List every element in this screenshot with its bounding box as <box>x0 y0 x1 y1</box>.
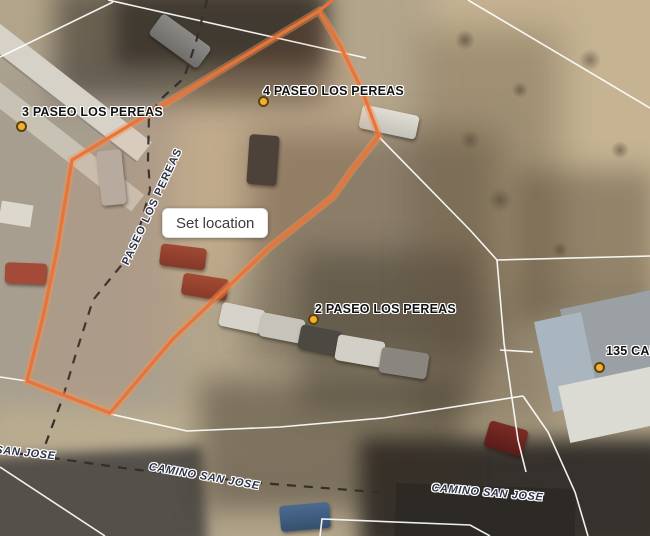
address-label: 3 PASEO LOS PEREAS <box>22 105 163 119</box>
address-marker[interactable] <box>258 96 269 107</box>
address-marker[interactable] <box>594 362 605 373</box>
parcel-boundary-line <box>497 260 526 472</box>
address-marker[interactable] <box>308 314 319 325</box>
parcel-boundary-line <box>523 396 588 536</box>
parcel-boundary-line <box>0 377 27 381</box>
address-label: 4 PASEO LOS PEREAS <box>263 84 404 98</box>
parcel-lines-layer <box>0 0 650 536</box>
parcel-boundary-line <box>0 467 105 536</box>
address-marker[interactable] <box>16 121 27 132</box>
set-location-menu-item[interactable]: Set location <box>162 208 268 238</box>
parcel-boundary-line <box>379 137 650 260</box>
address-label: 135 CAM <box>606 344 650 358</box>
parcel-boundary-line <box>468 0 650 108</box>
map-canvas[interactable]: 3 PASEO LOS PEREAS 4 PASEO LOS PEREAS 2 … <box>0 0 650 536</box>
address-label: 2 PASEO LOS PEREAS <box>315 302 456 316</box>
parcel-boundary-line <box>0 2 113 57</box>
selected-parcel-boundary-stub <box>319 0 336 11</box>
parcel-boundary-line <box>110 396 523 431</box>
parcel-boundary-line <box>320 519 490 536</box>
